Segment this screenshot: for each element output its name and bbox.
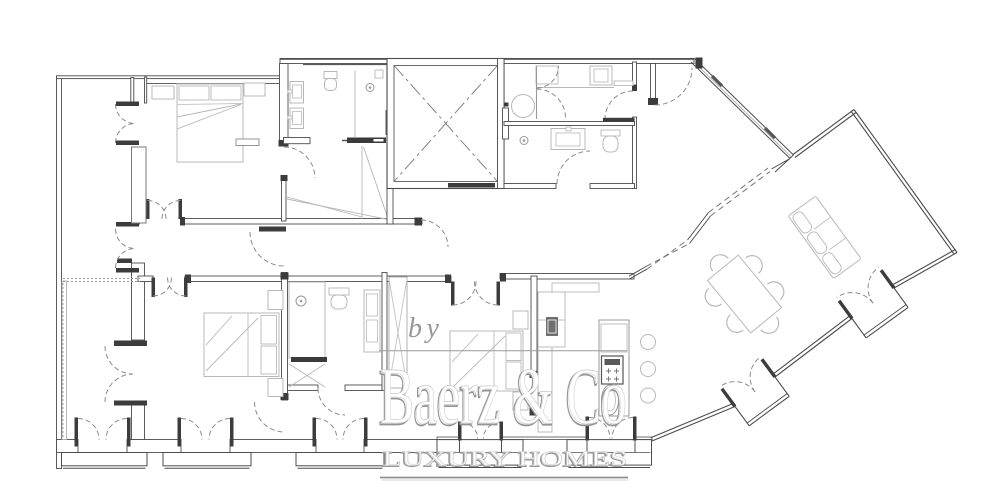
svg-text:Baerz & Co: Baerz & Co [380,353,627,441]
svg-text:by: by [408,313,443,344]
svg-text:LUXURY HOMES: LUXURY HOMES [383,447,628,471]
